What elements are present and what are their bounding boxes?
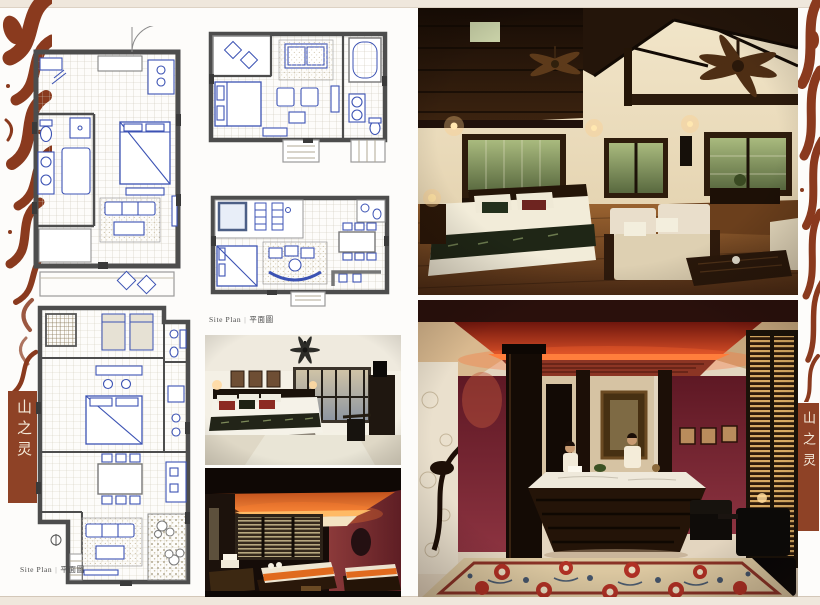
brand-title-box-right: 山之灵 <box>798 403 819 531</box>
floor-plan-a <box>28 26 186 302</box>
plan-d-spa-tub <box>46 314 76 346</box>
top-margin-strip <box>0 0 820 8</box>
photo-spa-reception <box>418 300 798 597</box>
floor-plan-c <box>207 190 393 310</box>
tribal-ornament-right-icon <box>796 0 820 402</box>
photo-modern-bedroom <box>205 335 401 465</box>
photo-treatment-room <box>205 468 401 597</box>
plan-a-deck-chairs <box>117 271 155 293</box>
plan-c-pool <box>219 203 246 230</box>
bottom-margin-strip <box>0 596 820 605</box>
floor-plan-d <box>24 302 196 590</box>
window-blinds <box>235 514 323 560</box>
brochure-page: 山之灵 山之灵 <box>0 0 820 605</box>
site-plan-label: Site Plan|平面圖 <box>209 314 274 325</box>
brand-title-vertical: 山之灵 <box>802 403 815 531</box>
carved-art <box>351 528 371 556</box>
photo-villa-loft-bedroom <box>418 8 798 295</box>
site-plan-label: Site Plan|平面圖 <box>20 564 85 575</box>
floor-plan-b <box>203 16 393 166</box>
massage-bed-2 <box>343 564 401 594</box>
